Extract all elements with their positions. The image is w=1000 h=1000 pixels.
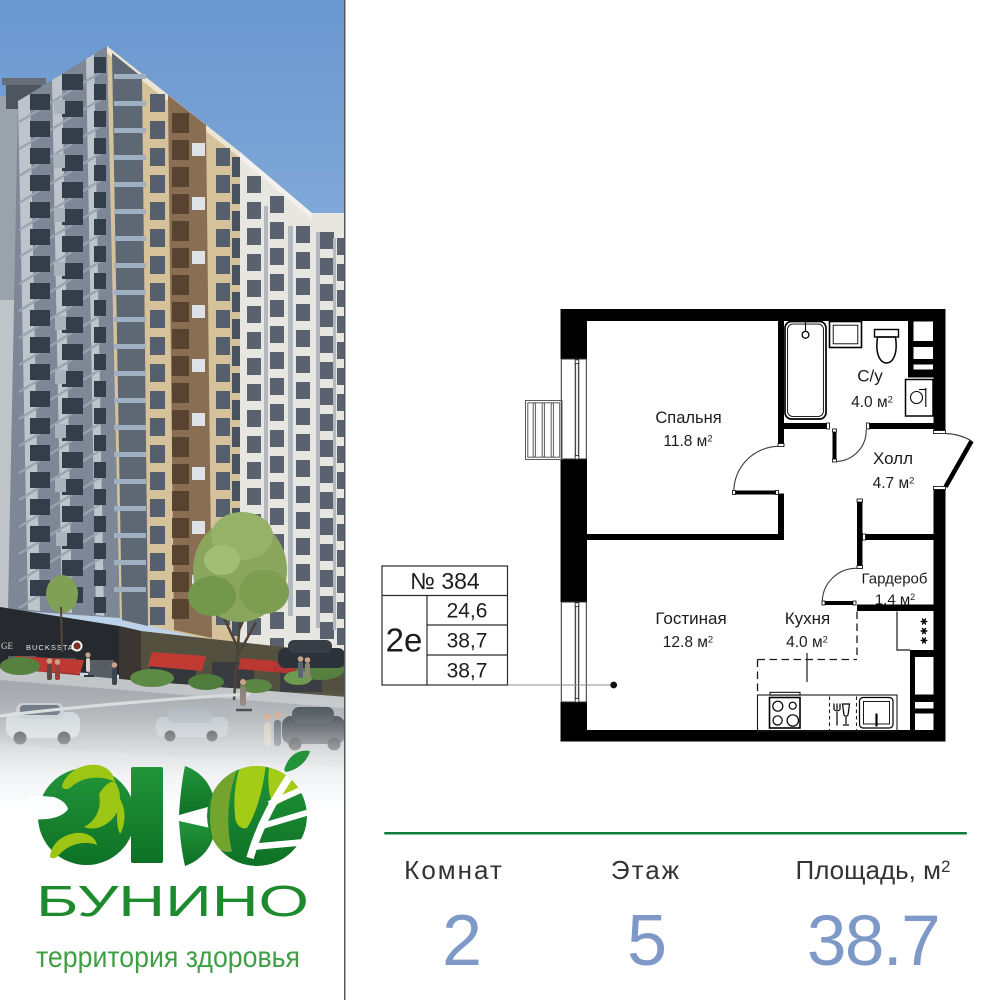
svg-text:БУНИНО: БУНИНО [36,877,309,926]
svg-text:24,6: 24,6 [447,600,488,623]
svg-text:4.7 м2: 4.7 м2 [873,475,915,492]
svg-text:GE: GE [1,641,13,651]
svg-text:12.8 м2: 12.8 м2 [663,634,713,651]
svg-text:5: 5 [627,901,667,981]
svg-text:Гостиная: Гостиная [655,609,726,628]
svg-text:2: 2 [442,901,482,981]
svg-text:38,7: 38,7 [447,660,488,683]
svg-text:Этаж: Этаж [611,855,681,885]
svg-text:38,7: 38,7 [447,630,488,653]
svg-text:2е: 2е [386,622,423,659]
svg-text:Гардероб: Гардероб [862,571,928,588]
svg-text:территория здоровья: территория здоровья [36,941,300,974]
svg-text:Площадь, м2: Площадь, м2 [796,855,951,885]
svg-text:1.4 м2: 1.4 м2 [875,592,915,609]
svg-text:Кухня: Кухня [785,609,831,628]
svg-text:38.7: 38.7 [807,902,939,981]
svg-text:4.0 м2: 4.0 м2 [786,634,828,651]
svg-text:№ 384: № 384 [410,568,480,594]
svg-text:Холл: Холл [873,449,913,468]
svg-text:С/у: С/у [857,367,883,386]
svg-text:Спальня: Спальня [655,409,721,427]
svg-text:Комнат: Комнат [404,855,504,885]
svg-text:11.8 м2: 11.8 м2 [663,433,712,450]
svg-text:4.0 м2: 4.0 м2 [851,394,893,411]
